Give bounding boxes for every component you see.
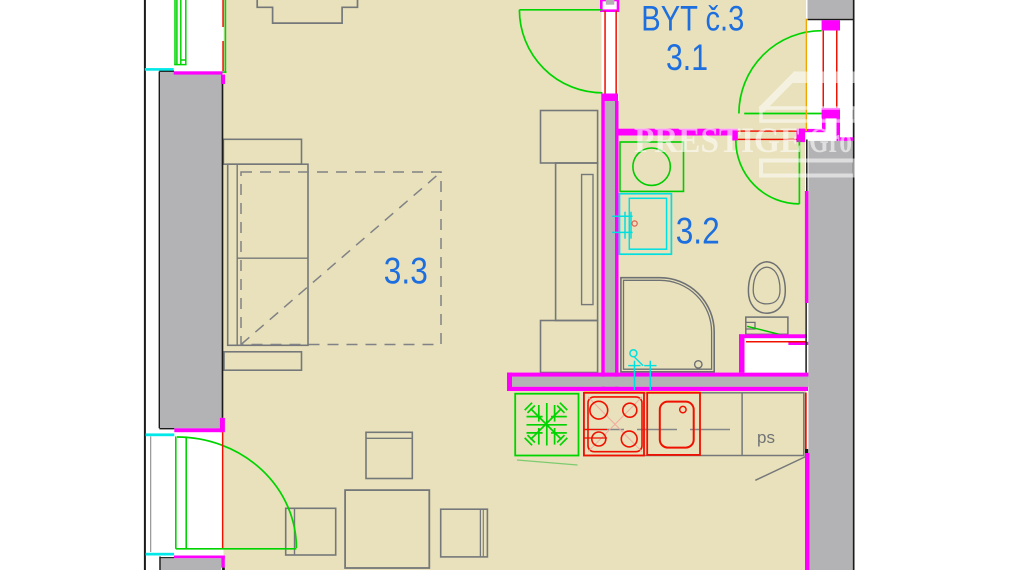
svg-text:Gro: Gro	[809, 120, 852, 160]
svg-text:ps: ps	[757, 428, 775, 447]
svg-text:BYT č.3: BYT č.3	[641, 0, 744, 38]
svg-text:PRESTIGE: PRESTIGE	[634, 120, 802, 160]
svg-text:3.2: 3.2	[676, 210, 720, 251]
svg-text:3.1: 3.1	[666, 37, 708, 78]
svg-text:3.3: 3.3	[384, 251, 428, 292]
